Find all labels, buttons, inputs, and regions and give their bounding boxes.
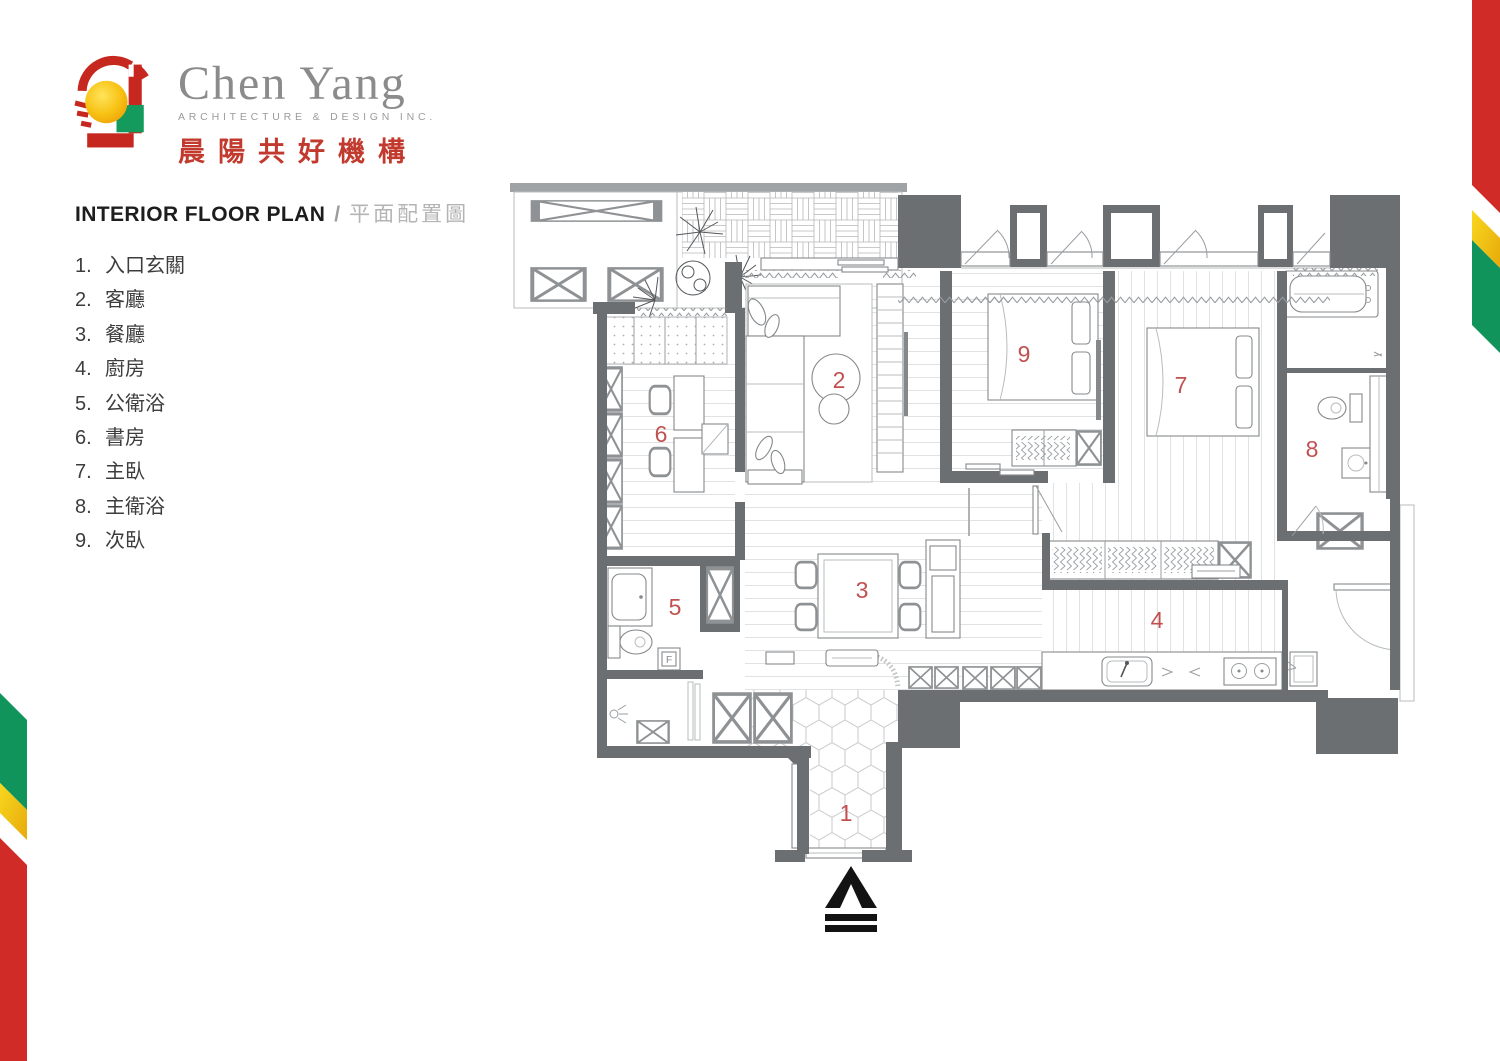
tv-console [877,284,903,472]
pillow [1072,302,1090,344]
room-label-3: 3 [856,577,869,603]
room-label-4: 4 [1151,607,1164,633]
tv [1096,340,1101,420]
chair [796,562,817,588]
room-label-1: 1 [840,800,853,826]
legend-item-label: 客廳 [105,283,145,312]
legend-item-number: 8. [75,496,105,519]
legend-item-number: 6. [75,427,105,450]
legend-item-label: 主臥 [105,455,145,484]
page-title: INTERIOR FLOOR PLAN/平面配置圖 [75,198,469,228]
floor-plan: F [500,170,1420,940]
chair [900,604,921,630]
chair [650,448,671,476]
room-label-2: 2 [833,367,846,393]
brand-name-zh: 晨陽共好機構 [178,130,436,169]
legend-item-number: 5. [75,393,105,416]
pillow [1236,386,1252,428]
legend-item-number: 1. [75,255,105,278]
legend-item-label: 公衛浴 [105,387,165,416]
ribbon-bottom-left [0,681,27,1061]
title-zh: 平面配置圖 [349,203,469,226]
legend-item: 3.餐廳 [75,318,185,352]
chair [650,386,671,414]
legend-item-label: 餐廳 [105,318,145,347]
legend-item: 9.次臥 [75,524,185,558]
brand: Chen Yang ARCHITECTURE & DESIGN INC. 晨陽共… [70,52,436,169]
toilet [1350,394,1362,422]
title-separator: / [334,203,340,226]
ribbon-top-right [1472,0,1500,356]
legend-item: 2.客廳 [75,283,185,317]
legend-item-label: 次臥 [105,524,145,553]
pillow [1072,352,1090,394]
north-arrow-icon [825,866,877,932]
legend-item: 8.主衛浴 [75,490,185,524]
parquet-deck [682,192,898,258]
title-en: INTERIOR FLOOR PLAN [75,203,325,226]
legend-item: 1.入口玄關 [75,249,185,283]
legend-item: 5.公衛浴 [75,387,185,421]
legend-item-number: 4. [75,358,105,381]
legend-item-number: 9. [75,530,105,553]
toilet [608,626,620,658]
brand-tagline: ARCHITECTURE & DESIGN INC. [178,111,436,123]
door-leaf [1334,584,1396,590]
shower-head [610,710,618,718]
room-label-8: 8 [1306,436,1319,462]
legend-item: 4.廚房 [75,352,185,386]
pillow [1236,336,1252,378]
tv [904,332,908,416]
presentation-slide: Chen Yang ARCHITECTURE & DESIGN INC. 晨陽共… [0,0,1500,1061]
legend-item-label: 主衛浴 [105,490,165,519]
legend-item-label: 入口玄關 [105,249,185,278]
legend-item-label: 廚房 [105,352,145,381]
desk [674,438,704,492]
legend-item-number: 3. [75,324,105,347]
brand-name: Chen Yang [178,60,436,108]
room-label-6: 6 [655,421,668,447]
legend-item-label: 書房 [105,421,145,450]
legend-item: 7.主臥 [75,455,185,489]
bathroom-master [1284,271,1388,492]
legend-item-number: 2. [75,289,105,312]
floor-drain-label: F [666,655,672,666]
living-room [745,284,908,484]
room-legend: 1.入口玄關 2.客廳 3.餐廳 4.廚房 5.公衛浴 6.書房 7.主臥 8.… [75,249,185,559]
desk [674,376,704,430]
chair [796,604,817,630]
chair [900,562,921,588]
legend-item-number: 7. [75,461,105,484]
room-label-9: 9 [1018,341,1031,367]
company-logo-icon [70,52,166,154]
vanity-sink [1342,448,1374,478]
room-label-5: 5 [669,594,682,620]
side-table [819,394,849,424]
bathroom-public: F [608,568,700,743]
room-label-7: 7 [1175,372,1188,398]
legend-item: 6.書房 [75,421,185,455]
